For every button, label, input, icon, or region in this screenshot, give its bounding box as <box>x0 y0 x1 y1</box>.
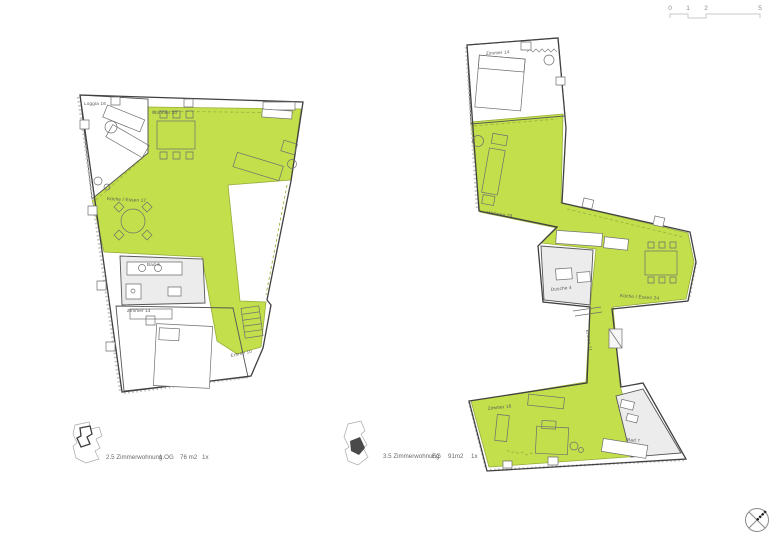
caption-left: 2.5 Zimmerwohnung 1.OG 76 m2 1x <box>106 454 209 461</box>
loggia-furniture <box>103 105 149 158</box>
shaft <box>609 329 622 348</box>
floor-plan-left: Loggia 16 Wohnen 20 Küche / Essen 17 Bad… <box>78 95 303 393</box>
room-label-wohnen-left: Wohnen 20 <box>152 110 177 115</box>
room-label-bad-left: Bad 6 <box>147 262 160 267</box>
caption-left-area: 76 m2 <box>180 454 198 461</box>
key-plan-left-unit <box>77 426 92 447</box>
room-label-loggia: Loggia 16 <box>84 101 106 106</box>
caption-left-count: 1x <box>202 454 209 461</box>
scale-bar: 0 1 2 5 <box>668 5 762 18</box>
scale-bar-line <box>670 14 760 18</box>
key-plan-left <box>73 422 102 463</box>
bed <box>475 55 525 111</box>
sideboard <box>262 109 292 119</box>
caption-left-type: 2.5 Zimmerwohnung <box>106 454 163 461</box>
north-compass-icon <box>746 509 769 532</box>
key-plan-right <box>344 421 368 465</box>
highlight-area-left <box>92 107 301 354</box>
kitchen-counter <box>556 230 603 246</box>
balcony-zigzag <box>527 49 557 52</box>
bed <box>153 324 212 389</box>
caption-left-floor: 1.OG <box>159 454 174 461</box>
caption-right-area: 91m2 <box>448 453 464 460</box>
scale-tick-0: 0 <box>668 5 672 12</box>
key-plan-right-unit <box>350 437 365 455</box>
zimmer-furniture-left <box>130 309 213 388</box>
side-table <box>105 121 117 133</box>
floorplan-sheet: Loggia 16 Wohnen 20 Küche / Essen 17 Bad… <box>0 0 780 551</box>
caption-right: 3.5 Zimmerwohnung EG 91m2 1x <box>383 453 478 460</box>
scale-tick-2: 2 <box>704 5 708 12</box>
zimmer-top-furniture <box>475 55 554 111</box>
room-label-zimmer-top: Zimmer 14 <box>486 49 510 56</box>
floor-plan-right: Zimmer 14 Wohnen 19 Küche / Essen 24 Dus… <box>466 38 696 471</box>
scale-tick-1: 1 <box>686 5 690 12</box>
scale-tick-5: 5 <box>758 5 762 12</box>
caption-right-floor: EG <box>432 453 441 460</box>
caption-right-count: 1x <box>471 453 478 460</box>
room-label-zimmer-left: Zimmer 14 <box>127 308 151 313</box>
